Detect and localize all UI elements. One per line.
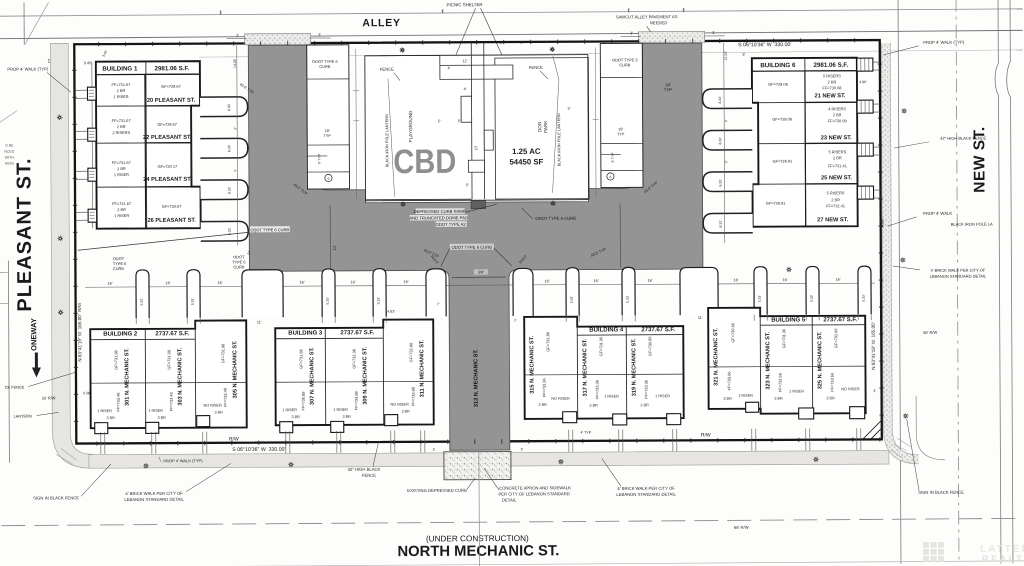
svg-text:8.33': 8.33' — [718, 179, 722, 187]
svg-text:3': 3' — [318, 33, 321, 37]
svg-text:GF=730.86: GF=730.86 — [647, 336, 652, 356]
svg-text:ALLEY: ALLEY — [362, 17, 400, 29]
svg-text:301 N. MECHANIC ST.: 301 N. MECHANIC ST. — [124, 348, 130, 406]
svg-text:42" HIGH BLACK FENCE: 42" HIGH BLACK FENCE — [940, 136, 986, 141]
svg-text:16': 16' — [648, 279, 653, 283]
svg-text:GF=731.66: GF=731.66 — [833, 329, 838, 349]
svg-text:1 RISER: 1 RISER — [113, 94, 128, 99]
svg-text:GF=729.67: GF=729.67 — [161, 84, 181, 89]
svg-text:GF=729.08: GF=729.08 — [768, 82, 788, 87]
svg-text:42" HIGH BLACK: 42" HIGH BLACK — [348, 467, 381, 472]
svg-text:GF=731.98: GF=731.98 — [113, 350, 118, 370]
svg-text:66' R/W: 66' R/W — [734, 525, 749, 530]
svg-text:5 RISERS: 5 RISERS — [823, 73, 841, 78]
svg-text:CBD: CBD — [393, 143, 456, 181]
svg-text:FF=733.66: FF=733.66 — [726, 371, 731, 390]
svg-text:DEPRESSED CURB RAMP: DEPRESSED CURB RAMP — [414, 209, 466, 214]
svg-text:GF=729.08: GF=729.08 — [772, 117, 792, 122]
svg-text:8.33': 8.33' — [718, 96, 722, 104]
svg-text:2 BR: 2 BR — [833, 155, 842, 160]
svg-text:319 N. MECHANIC ST.: 319 N. MECHANIC ST. — [631, 338, 637, 396]
svg-text:FF=733.36: FF=733.36 — [541, 378, 546, 397]
svg-text:26 PLEASANT ST.: 26 PLEASANT ST. — [147, 218, 196, 224]
svg-text:NCED: NCED — [4, 150, 15, 154]
svg-text:2 RISERS: 2 RISERS — [112, 130, 130, 135]
svg-text:8': 8' — [742, 53, 745, 57]
svg-text:GF=731.36: GF=731.36 — [598, 337, 603, 357]
svg-text:14.28': 14.28' — [233, 59, 237, 69]
svg-text:GF=732.38: GF=732.38 — [351, 349, 356, 369]
svg-text:2737.67 S.F.: 2737.67 S.F. — [823, 317, 857, 323]
svg-text:1 RISER: 1 RISER — [148, 409, 163, 413]
svg-text:311 N. MECHANIC ST.: 311 N. MECHANIC ST. — [419, 339, 425, 397]
svg-text:3': 3' — [712, 31, 715, 35]
svg-text:TYP: TYP — [324, 134, 332, 138]
svg-text:NEEDED: NEEDED — [650, 20, 667, 25]
svg-text:16': 16' — [300, 281, 305, 285]
svg-text:9' TYP: 9' TYP — [611, 152, 615, 163]
svg-text:305 N. MECHANIC ST.: 305 N. MECHANIC ST. — [232, 340, 238, 398]
svg-text:5': 5' — [499, 41, 502, 45]
svg-text:PER CITY OF LEBANON STANDARD: PER CITY OF LEBANON STANDARD — [498, 491, 569, 496]
svg-text:FENCE: FENCE — [529, 65, 543, 70]
svg-text:R/W: R/W — [701, 432, 711, 438]
svg-text:2 BR: 2 BR — [831, 197, 840, 202]
svg-text:BUILDING 5: BUILDING 5 — [771, 317, 806, 323]
svg-text:GF=730.17: GF=730.17 — [158, 164, 178, 169]
svg-text:LEBANON STANDARD DETAIL: LEBANON STANDARD DETAIL — [616, 492, 676, 497]
svg-text:33' R/W: 33' R/W — [42, 395, 56, 400]
svg-text:NO RISER: NO RISER — [551, 397, 570, 401]
svg-text:FF=731.41: FF=731.41 — [826, 203, 845, 208]
svg-text:10': 10' — [474, 145, 478, 150]
svg-text:9': 9' — [233, 127, 237, 130]
svg-text:2981.06 S.F.: 2981.06 S.F. — [154, 65, 189, 72]
svg-text:8.33': 8.33' — [719, 220, 723, 228]
svg-text:NO RISER: NO RISER — [390, 403, 409, 407]
svg-text:16': 16' — [404, 280, 409, 284]
svg-text:4.96': 4.96' — [859, 80, 867, 84]
svg-text:AND TRUNCATED DOME PAD: AND TRUNCATED DOME PAD — [409, 215, 468, 220]
svg-text:6: 6 — [327, 177, 329, 181]
svg-text:PROP 4' WALK (TYP): PROP 4' WALK (TYP) — [923, 40, 965, 45]
svg-text:SAWCUT ALLEY PAVEMENT AS: SAWCUT ALLEY PAVEMENT AS — [616, 14, 678, 19]
svg-text:FF=733.36: FF=733.36 — [595, 380, 600, 399]
svg-text:5 RISERS: 5 RISERS — [827, 190, 845, 195]
svg-text:2737.67 S.F.: 2737.67 S.F. — [641, 327, 675, 333]
svg-text:5': 5' — [438, 119, 441, 123]
svg-text:16': 16' — [734, 278, 739, 282]
svg-text:GF=730.67: GF=730.67 — [162, 204, 182, 209]
svg-text:8.33': 8.33' — [718, 137, 722, 145]
svg-text:3 BR: 3 BR — [157, 416, 166, 420]
svg-text:ODOT TYPE A2: ODOT TYPE A2 — [436, 222, 467, 227]
svg-text:FF=733.88: FF=733.88 — [411, 387, 416, 406]
svg-text:FF=731.41: FF=731.41 — [828, 163, 847, 168]
svg-text:9': 9' — [724, 119, 728, 122]
svg-text:1 RISER: 1 RISER — [655, 394, 670, 398]
svg-text:4' BRICK WALK PER CITY OF: 4' BRICK WALK PER CITY OF — [125, 491, 183, 496]
svg-text:SIGN IN BLACK FENCE: SIGN IN BLACK FENCE — [33, 495, 79, 500]
svg-text:1 RISER: 1 RISER — [789, 389, 804, 393]
svg-text:FENCE: FENCE — [380, 67, 394, 72]
svg-text:GF=731.98: GF=731.98 — [166, 350, 171, 370]
svg-text:1 RISER: 1 RISER — [282, 408, 297, 412]
svg-text:317 N. MECHANIC ST.: 317 N. MECHANIC ST. — [582, 338, 588, 396]
svg-text:FF=731.67: FF=731.67 — [112, 118, 131, 123]
svg-text:BUILDING 4: BUILDING 4 — [589, 327, 624, 333]
svg-text:4' TYP: 4' TYP — [580, 431, 591, 435]
svg-text:313 N. MECHANIC ST.: 313 N. MECHANIC ST. — [473, 349, 479, 407]
svg-text:5.33': 5.33' — [326, 297, 330, 305]
svg-text:2 BR: 2 BR — [117, 124, 126, 129]
svg-text:PLEASANT ST.: PLEASANT ST. — [13, 157, 36, 311]
svg-text:1 RISER: 1 RISER — [114, 172, 129, 177]
svg-text:PLAYGROUND: PLAYGROUND — [408, 110, 413, 143]
svg-text:LANTERN: LANTERN — [14, 414, 32, 419]
svg-text:321 N. MECHANIC ST.: 321 N. MECHANIC ST. — [713, 328, 719, 386]
svg-text:5.33': 5.33' — [377, 297, 381, 305]
svg-text:BLACK IRON POLE LANTERN: BLACK IRON POLE LANTERN — [557, 113, 561, 166]
svg-text:4 RISERS: 4 RISERS — [828, 106, 846, 111]
svg-text:3 BR: 3 BR — [291, 415, 300, 419]
svg-text:BUILDING 1: BUILDING 1 — [102, 65, 138, 72]
svg-text:O BE: O BE — [5, 144, 14, 148]
svg-text:1 RISER: 1 RISER — [604, 394, 619, 398]
svg-text:315 N. MECHANIC ST.: 315 N. MECHANIC ST. — [529, 336, 535, 394]
svg-text:24': 24' — [333, 245, 337, 250]
svg-text:GF=731.98: GF=731.98 — [220, 344, 225, 364]
svg-text:307 N. MECHANIC ST.: 307 N. MECHANIC ST. — [309, 347, 315, 405]
svg-text:16': 16' — [351, 280, 356, 284]
svg-text:2 BR: 2 BR — [833, 112, 842, 117]
svg-text:309 N. MECHANIC ST.: 309 N. MECHANIC ST. — [362, 346, 368, 404]
svg-text:14.83': 14.83' — [385, 310, 395, 314]
svg-text:S 06°10'36" W 330.00': S 06°10'36" W 330.00' — [738, 42, 791, 48]
svg-text:REALTORS: REALTORS — [982, 554, 1024, 564]
svg-text:NORTH MECHANIC ST.: NORTH MECHANIC ST. — [397, 543, 559, 560]
svg-text:FENCE: FENCE — [362, 473, 376, 478]
svg-text:1.25 AC: 1.25 AC — [512, 147, 541, 156]
svg-text:GF=729.67: GF=729.67 — [157, 122, 177, 127]
svg-text:FF=731.67: FF=731.67 — [111, 82, 130, 87]
svg-text:GF=732.88: GF=732.88 — [408, 343, 413, 363]
svg-text:ODOT TYPE 6 CURB: ODOT TYPE 6 CURB — [535, 216, 576, 221]
svg-text:TYP: TYP — [664, 87, 672, 92]
svg-text:12': 12' — [462, 59, 467, 63]
svg-text:4' BRICK WALK PER CITY OF: 4' BRICK WALK PER CITY OF — [931, 268, 986, 273]
svg-text:GF=730.66: GF=730.66 — [730, 323, 735, 343]
svg-text:2 BR: 2 BR — [117, 88, 126, 93]
svg-text:3': 3' — [236, 33, 239, 37]
svg-text:11': 11' — [257, 320, 262, 324]
svg-text:ODOT TYPE 6 CURB: ODOT TYPE 6 CURB — [452, 245, 493, 250]
svg-text:16': 16' — [166, 281, 171, 285]
svg-text:9': 9' — [233, 169, 237, 172]
svg-text:66' R/W: 66' R/W — [923, 330, 937, 335]
svg-text:5.33': 5.33' — [758, 295, 762, 303]
svg-text:16': 16' — [836, 278, 841, 282]
svg-text:LEBANON STANDARD DETAIL: LEBANON STANDARD DETAIL — [124, 497, 184, 502]
svg-text:DOG: DOG — [537, 121, 542, 132]
svg-text:20 PLEASANT ST.: 20 PLEASANT ST. — [147, 98, 196, 104]
svg-text:5': 5' — [568, 107, 571, 111]
svg-text:PARK: PARK — [543, 120, 548, 133]
svg-text:25 NEW ST.: 25 NEW ST. — [821, 175, 852, 181]
svg-text:18': 18' — [325, 129, 330, 133]
svg-text:3 BR: 3 BR — [342, 415, 351, 419]
svg-text:1 RISER: 1 RISER — [738, 394, 753, 398]
svg-text:1 RISER: 1 RISER — [114, 213, 129, 218]
svg-text:N 83°41'19" W 165.00' R/W: N 83°41'19" W 165.00' R/W — [77, 302, 82, 362]
svg-text:BUILDING 6: BUILDING 6 — [760, 62, 796, 69]
svg-text:4' BRICK WALK PER CITY OF: 4' BRICK WALK PER CITY OF — [617, 486, 675, 491]
svg-text:CURB: CURB — [233, 264, 244, 269]
svg-text:(UNDER CONSTRUCTION): (UNDER CONSTRUCTION) — [426, 534, 529, 544]
svg-text:FF=733.48: FF=733.48 — [116, 393, 121, 412]
svg-text:GF=731.88: GF=731.88 — [298, 349, 303, 369]
svg-text:21 NEW ST.: 21 NEW ST. — [815, 93, 846, 99]
svg-text:PROP 4' WALK (TYP): PROP 4' WALK (TYP) — [7, 66, 49, 71]
svg-text:BUILDING 3: BUILDING 3 — [288, 330, 323, 336]
svg-text:N 83°41'19" W 165.00': N 83°41'19" W 165.00' — [871, 322, 876, 370]
svg-text:7': 7' — [437, 302, 440, 306]
svg-text:16': 16' — [783, 278, 788, 282]
svg-text:3 BR: 3 BR — [640, 403, 649, 407]
svg-text:2737.67 S.F.: 2737.67 S.F. — [155, 331, 189, 337]
svg-text:5.33': 5.33' — [810, 294, 814, 302]
svg-text:5.33': 5.33' — [140, 298, 144, 306]
svg-text:5': 5' — [466, 183, 469, 187]
svg-text:ODOT TYPE 6 CURB: ODOT TYPE 6 CURB — [250, 227, 289, 232]
svg-text:FF=730.08: FF=730.08 — [823, 85, 842, 90]
svg-text:22 PLEASANT ST.: 22 PLEASANT ST. — [143, 135, 192, 141]
svg-text:NO RISER: NO RISER — [203, 404, 222, 408]
svg-text:PICNIC SHELTER: PICNIC SHELTER — [447, 2, 483, 7]
svg-text:CURB: CURB — [319, 64, 330, 69]
svg-text:3 BR: 3 BR — [538, 403, 547, 407]
svg-text:3': 3' — [433, 448, 436, 452]
svg-text:4': 4' — [447, 66, 450, 70]
svg-text:16': 16' — [108, 282, 113, 286]
svg-text:3 BR: 3 BR — [774, 397, 783, 401]
svg-text:8.33': 8.33' — [227, 186, 231, 194]
svg-text:GF=729.91: GF=729.91 — [766, 201, 786, 206]
svg-text:2737.67 S.F.: 2737.67 S.F. — [340, 330, 374, 336]
svg-text:1: 1 — [47, 58, 50, 64]
svg-text:FF=731.67: FF=731.67 — [112, 201, 131, 206]
svg-text:CK FENCE: CK FENCE — [5, 385, 25, 390]
svg-text:16': 16' — [545, 279, 550, 283]
svg-text:1 RISER: 1 RISER — [97, 409, 112, 413]
svg-text:GF=729.91: GF=729.91 — [773, 159, 793, 164]
svg-text:FF=733.48: FF=733.48 — [169, 392, 174, 411]
svg-text:GF=731.86: GF=731.86 — [545, 332, 550, 352]
svg-text:5': 5' — [520, 41, 523, 45]
svg-text:9' TYP: 9' TYP — [317, 153, 321, 164]
svg-text:24 PLEASANT ST.: 24 PLEASANT ST. — [143, 177, 192, 183]
svg-text:FF=733.66: FF=733.66 — [829, 373, 834, 392]
svg-text:S 06°10'36" W 330.00': S 06°10'36" W 330.00' — [232, 447, 285, 453]
svg-text:GF=731.36: GF=731.36 — [781, 329, 786, 349]
svg-text:9': 9' — [724, 160, 728, 163]
svg-text:2 BR: 2 BR — [117, 166, 126, 171]
svg-text:3 BR: 3 BR — [589, 404, 598, 408]
svg-text:11': 11' — [698, 316, 703, 320]
svg-text:16': 16' — [594, 279, 599, 283]
svg-text:NION: NION — [5, 162, 14, 166]
svg-text:8.33': 8.33' — [227, 144, 231, 152]
svg-text:3 BR: 3 BR — [214, 411, 223, 415]
svg-text:TYP: TYP — [617, 132, 625, 136]
svg-text:DETAIL: DETAIL — [502, 497, 517, 502]
svg-text:R/W: R/W — [229, 436, 239, 442]
svg-text:ONEWAY: ONEWAY — [29, 318, 38, 351]
svg-text:5.33': 5.33' — [862, 294, 866, 302]
svg-text:2981.06 S.F.: 2981.06 S.F. — [813, 62, 848, 69]
svg-text:3 BR: 3 BR — [106, 416, 115, 420]
svg-text:323 N. MECHANIC ST.: 323 N. MECHANIC ST. — [765, 331, 771, 389]
svg-text:3 BR: 3 BR — [401, 410, 410, 414]
svg-text:23 NEW ST.: 23 NEW ST. — [821, 135, 852, 141]
svg-text:2 BR: 2 BR — [117, 207, 126, 212]
svg-text:303 N. MECHANIC ST.: 303 N. MECHANIC ST. — [177, 347, 183, 405]
svg-text:BLACK IRON POLE LA: BLACK IRON POLE LA — [951, 221, 993, 226]
svg-text:16': 16' — [218, 281, 223, 285]
svg-text:24': 24' — [478, 270, 483, 275]
svg-text:PROP 4' WALK (TYP): PROP 4' WALK (TYP) — [163, 458, 203, 463]
svg-text:54450 SF: 54450 SF — [509, 157, 543, 166]
svg-text:3': 3' — [873, 389, 876, 393]
svg-text:12.24': 12.24' — [724, 51, 728, 61]
svg-text:27 NEW ST.: 27 NEW ST. — [817, 217, 848, 223]
svg-text:FF=733.88: FF=733.88 — [354, 391, 359, 410]
svg-text:9.45': 9.45' — [84, 61, 92, 65]
svg-text:NO RISER: NO RISER — [841, 387, 860, 391]
svg-text:325 N. MECHANIC ST.: 325 N. MECHANIC ST. — [817, 331, 823, 389]
svg-text:7': 7' — [514, 319, 517, 323]
svg-text:CURB: CURB — [619, 62, 630, 67]
svg-text:3': 3' — [630, 31, 633, 35]
svg-text:PROP 4' WALK: PROP 4' WALK — [923, 211, 952, 216]
svg-text:5 RISERS: 5 RISERS — [828, 149, 846, 154]
svg-text:FF=733.36: FF=733.36 — [644, 380, 649, 399]
svg-text:1 RISER: 1 RISER — [333, 408, 348, 412]
svg-text:5.33': 5.33' — [570, 296, 574, 304]
svg-text:SIGN IN BLACK FENCE: SIGN IN BLACK FENCE — [918, 490, 964, 495]
svg-text:FF=730.08: FF=730.08 — [828, 118, 847, 123]
svg-text:WITH: WITH — [5, 156, 15, 160]
svg-text:3 BR: 3 BR — [723, 397, 732, 401]
svg-text:FF=731.67: FF=731.67 — [112, 160, 131, 165]
svg-text:2 BR: 2 BR — [828, 79, 837, 84]
svg-text:FF=733.48: FF=733.48 — [223, 388, 228, 407]
svg-text:FF=733.66: FF=733.66 — [777, 373, 782, 392]
svg-text:CONCRETE APRON AND SIDEWALK: CONCRETE APRON AND SIDEWALK — [499, 485, 571, 490]
svg-text:4.38': 4.38' — [83, 391, 91, 395]
svg-text:5.33': 5.33' — [191, 298, 195, 306]
svg-text:LEBANON STANDARD DETAIL: LEBANON STANDARD DETAIL — [930, 274, 988, 279]
svg-text:FF=735.88: FF=735.88 — [301, 392, 306, 411]
svg-text:BLACK IRON POLE LANTERN: BLACK IRON POLE LANTERN — [385, 114, 389, 167]
svg-text:5.33': 5.33' — [626, 295, 630, 303]
svg-text:3': 3' — [521, 447, 524, 451]
svg-text:BUILDING 2: BUILDING 2 — [103, 331, 138, 337]
svg-text:EXISTING DEPRESSED CURB: EXISTING DEPRESSED CURB — [407, 488, 467, 493]
svg-text:6: 6 — [609, 175, 611, 179]
svg-text:5': 5' — [458, 119, 461, 123]
svg-text:8.33': 8.33' — [227, 103, 231, 111]
svg-text:4': 4' — [464, 87, 467, 91]
svg-text:3 BR: 3 BR — [826, 396, 835, 400]
svg-text:CURB: CURB — [113, 266, 124, 271]
svg-text:18': 18' — [618, 127, 623, 131]
